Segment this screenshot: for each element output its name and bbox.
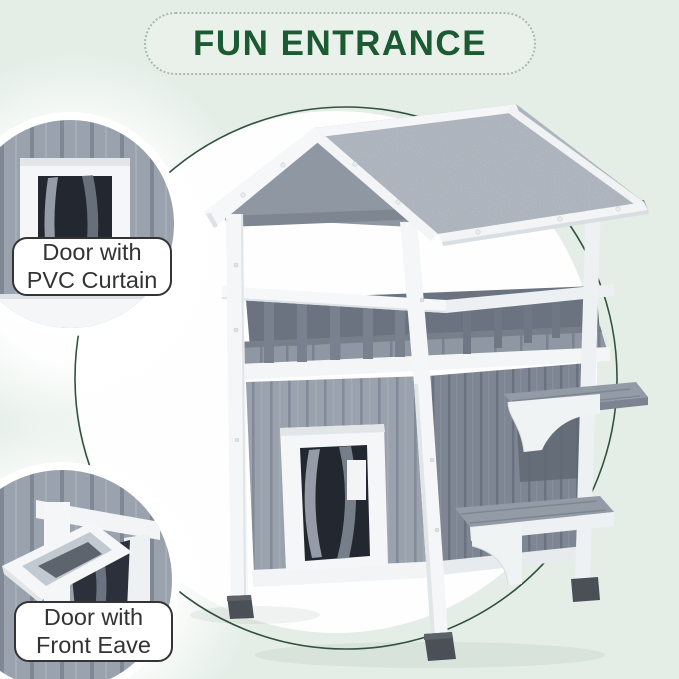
banner-pill: FUN ENTRANCE (144, 12, 536, 75)
callout-label-pvc-curtain: Door with PVC Curtain (12, 237, 172, 296)
callout-label-line: Front Eave (36, 632, 151, 659)
callout-label-line: Door with (42, 239, 141, 266)
callout-label-front-eave: Door with Front Eave (14, 601, 173, 662)
door-pvc-curtain (280, 424, 388, 571)
banner-title: FUN ENTRANCE (193, 24, 487, 64)
scene-illustration (0, 0, 679, 679)
callout-label-line: Door with (44, 604, 143, 631)
ground-shadow-left (190, 606, 320, 624)
product-infographic: FUN ENTRANCE Door with PVC Curtain Door … (0, 0, 679, 679)
callout-label-line: PVC Curtain (27, 267, 158, 294)
